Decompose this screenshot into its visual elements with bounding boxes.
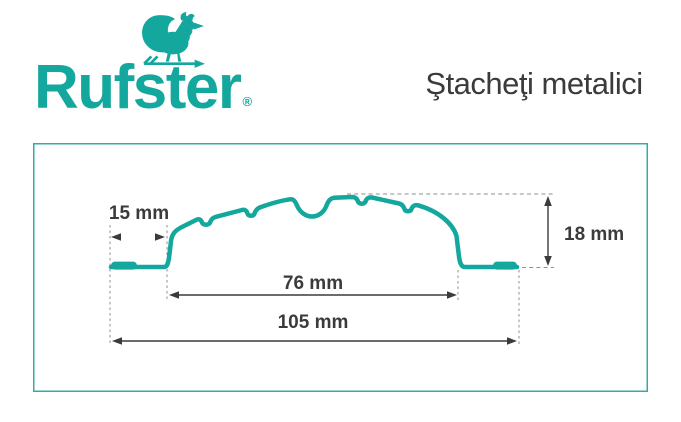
dimension-height: 18 mm (544, 196, 624, 266)
page-title: Ştacheţi metalici (404, 66, 664, 102)
arrowhead-right-icon (155, 233, 165, 241)
profile-outline (111, 197, 517, 267)
inner-width-label: 76 mm (283, 273, 343, 294)
overall-width-label: 105 mm (278, 312, 349, 333)
arrowhead-left-icon (111, 233, 121, 241)
arrowhead-up-icon (544, 196, 552, 206)
dimension-inner-width: 76 mm (169, 273, 457, 299)
logo-text: Rufster (34, 53, 241, 122)
height-label: 18 mm (564, 224, 624, 245)
arrowhead-right-icon (507, 337, 517, 345)
arrowhead-down-icon (544, 256, 552, 266)
registered-trademark: ® (243, 94, 253, 109)
picket-profile (111, 197, 517, 267)
dimension-overall-width: 105 mm (112, 312, 517, 345)
foot-width-label: 15 mm (109, 203, 169, 224)
arrowhead-left-icon (112, 337, 122, 345)
dimension-foot-width: 15 mm (109, 203, 169, 241)
arrowhead-left-icon (169, 291, 179, 299)
logo: Rufster® (0, 0, 300, 130)
arrowhead-right-icon (447, 291, 457, 299)
profile-diagram: 15 mm 18 mm 76 mm 105 mm (33, 143, 648, 392)
logo-wordmark: Rufster® (34, 60, 250, 132)
